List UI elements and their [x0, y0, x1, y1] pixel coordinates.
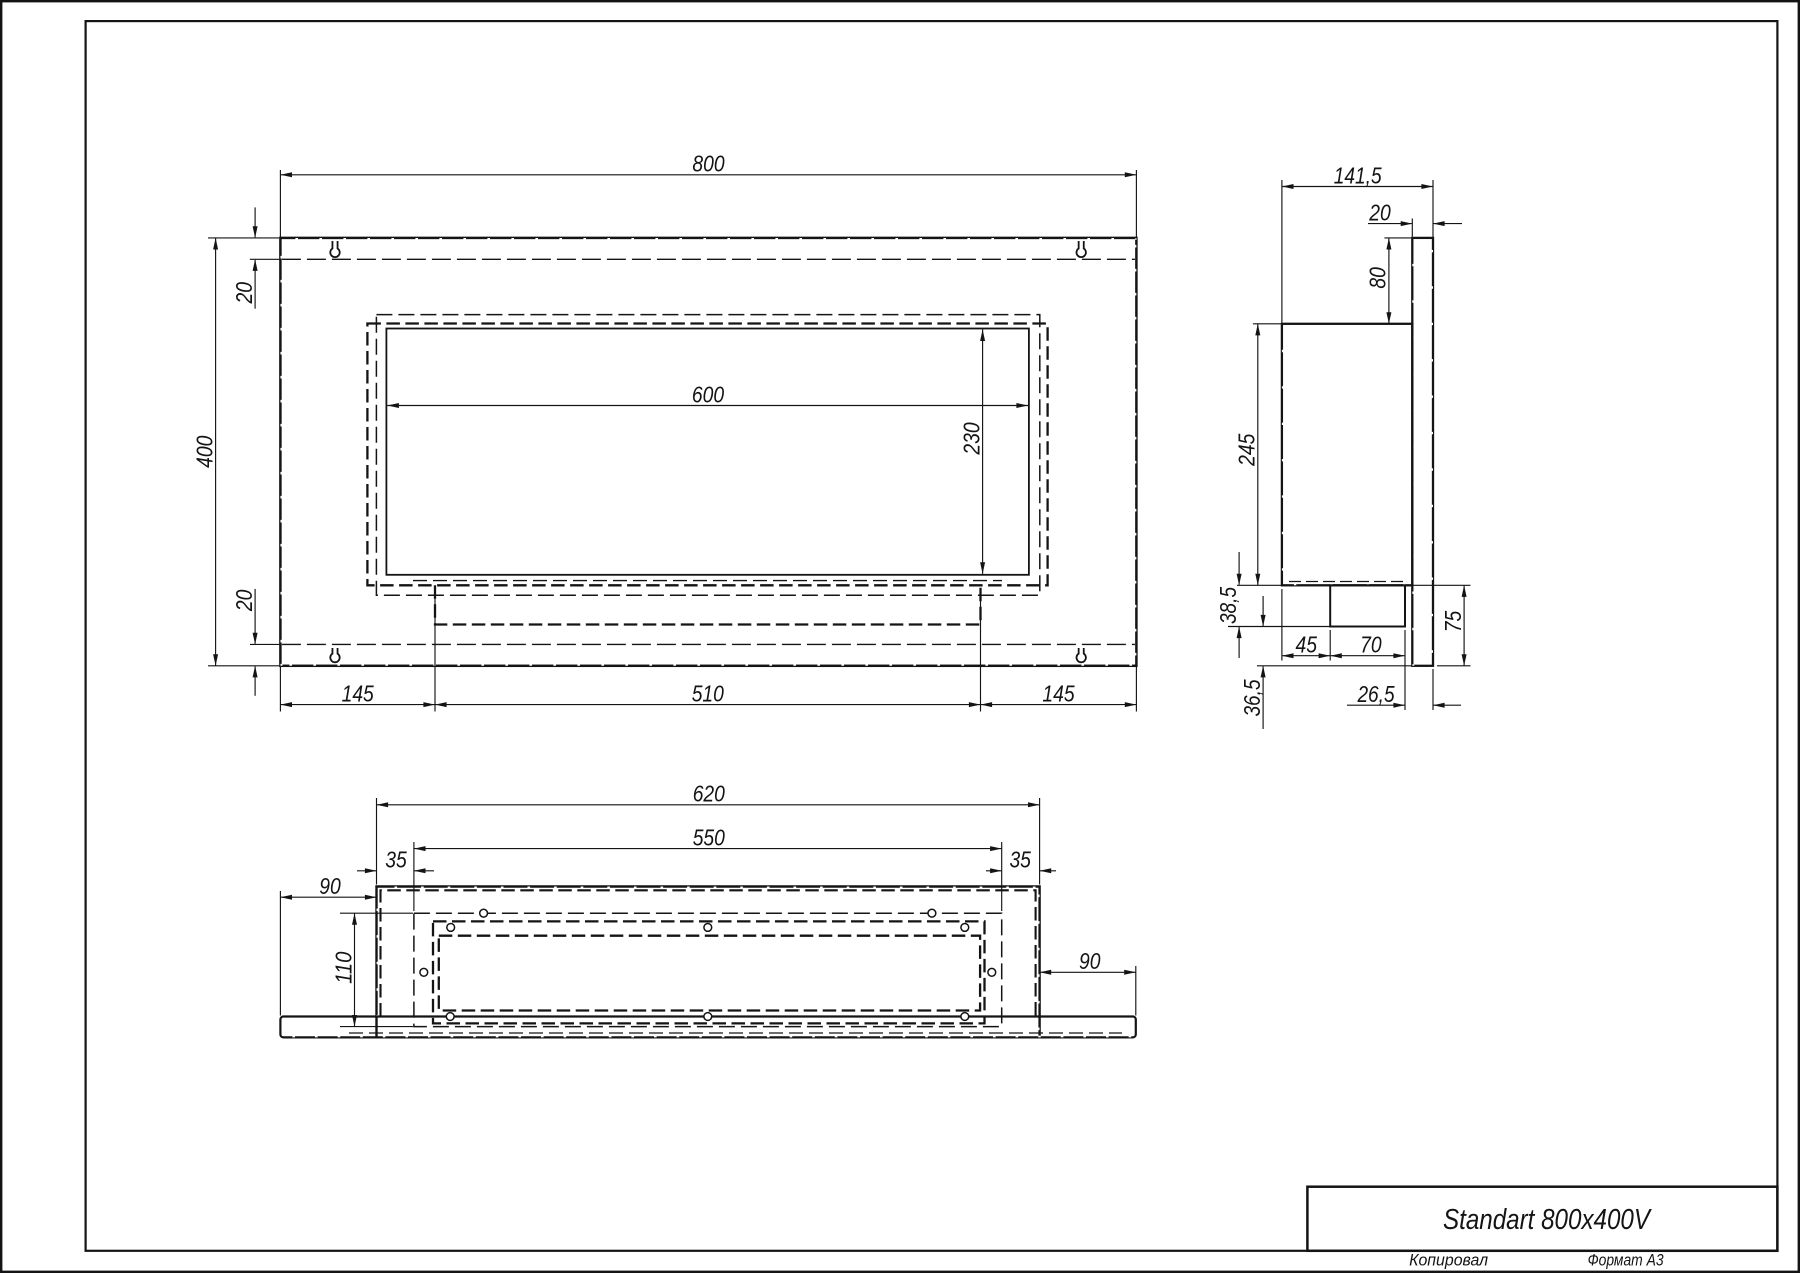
- svg-text:80: 80: [1365, 267, 1391, 289]
- svg-text:45: 45: [1296, 632, 1318, 658]
- svg-text:Копировал: Копировал: [1409, 1251, 1488, 1269]
- svg-text:550: 550: [693, 824, 725, 850]
- svg-text:90: 90: [1079, 948, 1101, 974]
- svg-text:145: 145: [1042, 680, 1074, 706]
- svg-text:Standart 800x400V: Standart 800x400V: [1443, 1204, 1652, 1236]
- svg-text:620: 620: [693, 781, 725, 807]
- svg-text:245: 245: [1234, 434, 1260, 467]
- svg-text:35: 35: [385, 847, 407, 873]
- svg-text:20: 20: [231, 589, 257, 612]
- svg-text:35: 35: [1009, 847, 1031, 873]
- svg-text:400: 400: [191, 436, 217, 468]
- svg-text:145: 145: [342, 680, 374, 706]
- svg-text:20: 20: [1368, 199, 1391, 225]
- svg-text:38,5: 38,5: [1215, 587, 1241, 624]
- svg-text:90: 90: [319, 873, 341, 899]
- svg-text:75: 75: [1440, 611, 1466, 633]
- svg-text:510: 510: [692, 680, 724, 706]
- svg-text:36,5: 36,5: [1239, 679, 1265, 716]
- svg-text:20: 20: [231, 282, 257, 305]
- svg-text:26,5: 26,5: [1357, 681, 1395, 707]
- svg-text:800: 800: [692, 151, 724, 177]
- svg-text:70: 70: [1360, 632, 1382, 658]
- svg-text:230: 230: [958, 422, 984, 455]
- svg-text:110: 110: [330, 952, 356, 984]
- svg-text:600: 600: [692, 381, 724, 407]
- svg-text:141,5: 141,5: [1334, 162, 1382, 188]
- svg-text:Формат А3: Формат А3: [1588, 1251, 1665, 1269]
